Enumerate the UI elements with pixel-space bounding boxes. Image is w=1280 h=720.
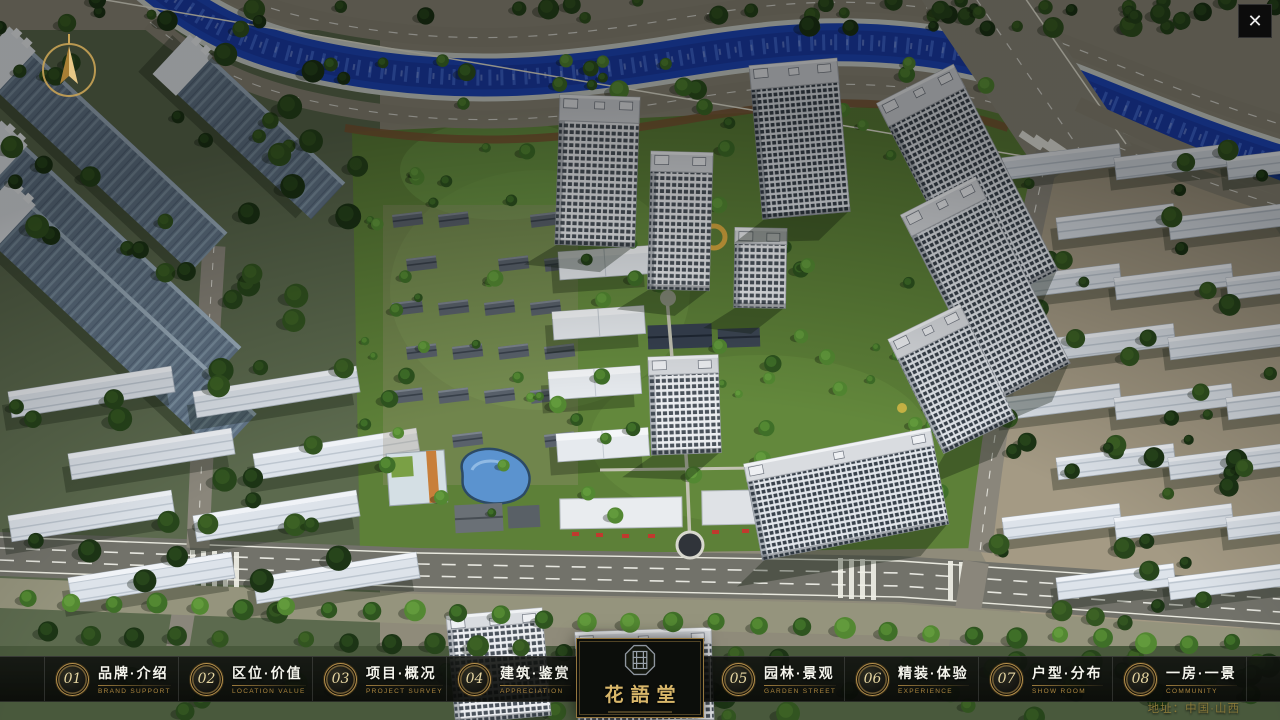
nav-label-en: APPRECIATION (500, 688, 571, 695)
nav-item-brand[interactable]: 01 品牌·介绍 BRAND SUPPORT (44, 657, 178, 701)
divider (366, 685, 443, 686)
nav-badge: 03 (324, 663, 357, 696)
project-logo-tagline (608, 711, 672, 714)
project-logo-name: 花語堂 (597, 680, 682, 707)
navbar-filler-right (1246, 657, 1280, 701)
divider (98, 685, 171, 686)
divider (500, 685, 571, 686)
nav-label-zh: 区位·价值 (232, 663, 306, 683)
nav-badge: 01 (56, 663, 89, 696)
nav-item-garden[interactable]: 05 园林·景观 GARDEN STREET (710, 657, 844, 701)
nav-label-en: PROJECT SURVEY (366, 688, 443, 695)
nav-item-project[interactable]: 03 项目·概况 PROJECT SURVEY (312, 657, 446, 701)
divider (1032, 685, 1103, 686)
nav-item-location[interactable]: 02 区位·价值 LOCATION VALUE (178, 657, 312, 701)
nav-badge: 04 (458, 663, 491, 696)
nav-label-zh: 项目·概况 (366, 663, 443, 683)
nav-item-architecture[interactable]: 04 建筑·鉴赏 APPRECIATION (446, 657, 580, 701)
nav-item-interior[interactable]: 06 精装·体验 EXPERIENCE (844, 657, 978, 701)
nav-item-floorplans[interactable]: 07 户型·分布 SHOW ROOM (978, 657, 1112, 701)
nav-label-zh: 品牌·介绍 (98, 663, 171, 683)
nav-label-en: GARDEN STREET (764, 688, 836, 695)
navbar-filler-left (0, 657, 44, 701)
nav-label-zh: 户型·分布 (1032, 663, 1103, 683)
divider (898, 685, 969, 686)
compass-icon (38, 32, 100, 107)
nav-label-zh: 建筑·鉴赏 (500, 663, 571, 683)
nav-label-zh: 精装·体验 (898, 663, 969, 683)
nav-label-en: SHOW ROOM (1032, 688, 1103, 695)
nav-item-views[interactable]: 08 一房·一景 COMMUNITY (1112, 657, 1246, 701)
nav-label-en: LOCATION VALUE (232, 688, 306, 695)
divider (764, 685, 836, 686)
nav-label-en: COMMUNITY (1166, 688, 1237, 695)
nav-label-en: EXPERIENCE (898, 688, 969, 695)
project-logo-button[interactable]: 花語堂 (576, 638, 704, 718)
divider (232, 685, 306, 686)
nav-badge: 08 (1124, 663, 1157, 696)
close-button[interactable]: ✕ (1238, 4, 1272, 38)
nav-badge: 05 (722, 663, 755, 696)
seal-emblem-icon (623, 643, 657, 677)
nav-label-zh: 一房·一景 (1166, 663, 1237, 683)
nav-badge: 02 (190, 663, 223, 696)
divider (1166, 685, 1237, 686)
masterplan-view[interactable] (0, 0, 1280, 720)
nav-label-en: BRAND SUPPORT (98, 688, 171, 695)
address-text: 地址：中国·山西 (1148, 700, 1240, 716)
nav-badge: 06 (856, 663, 889, 696)
nav-label-zh: 园林·景观 (764, 663, 836, 683)
nav-badge: 07 (990, 663, 1023, 696)
